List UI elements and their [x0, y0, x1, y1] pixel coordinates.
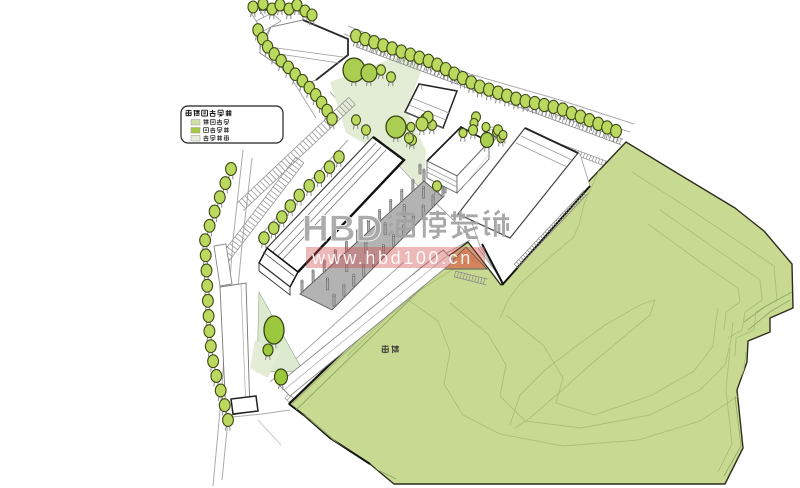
svg-text:HBD: HBD: [302, 208, 382, 249]
svg-text:www.hbd100.cn: www.hbd100.cn: [311, 248, 473, 268]
